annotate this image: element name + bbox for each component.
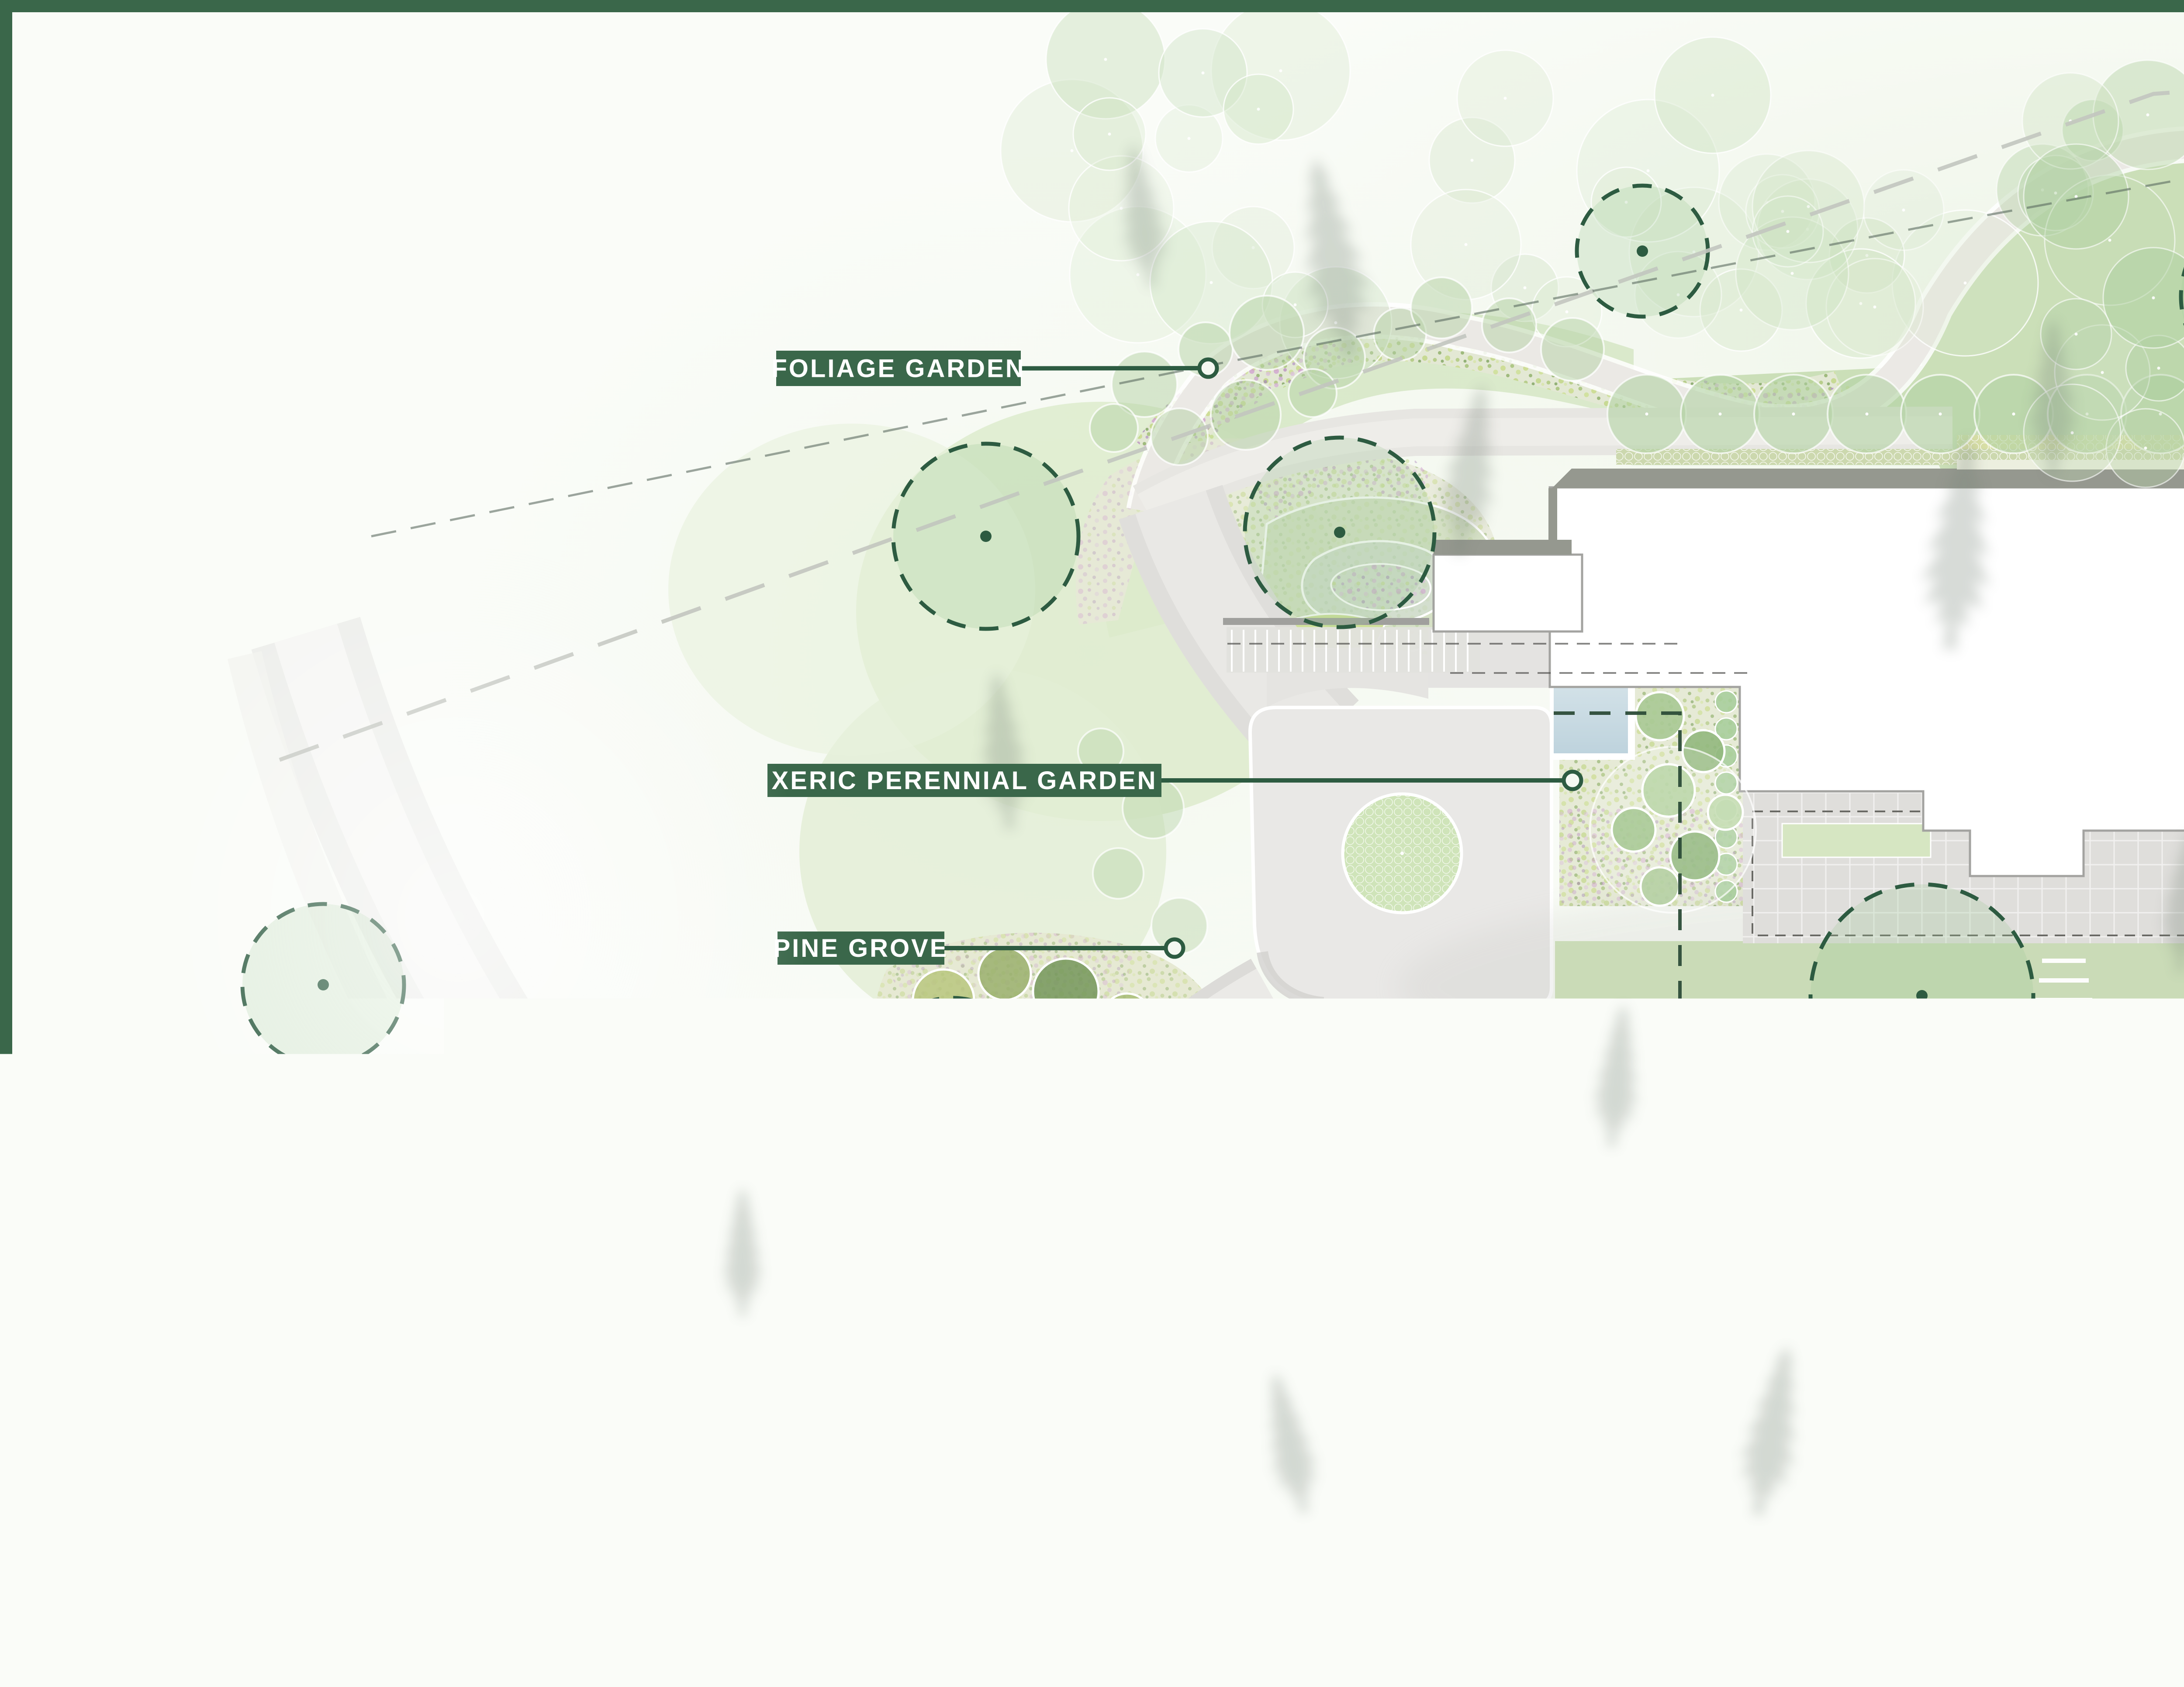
svg-text:MEADOW: MEADOW	[1412, 1236, 1541, 1264]
svg-text:XERIC PERENNIAL GARDEN: XERIC PERENNIAL GARDEN	[772, 766, 1158, 795]
svg-text:40: 40	[377, 1551, 404, 1577]
svg-text:20: 20	[290, 1551, 316, 1577]
svg-text:FOLIAGE GARDEN: FOLIAGE GARDEN	[771, 355, 1025, 383]
svg-text:0: 0	[206, 1551, 219, 1577]
svg-text:PRESERVED SPECIMEN TREE: PRESERVED SPECIMEN TREE	[330, 1355, 734, 1381]
